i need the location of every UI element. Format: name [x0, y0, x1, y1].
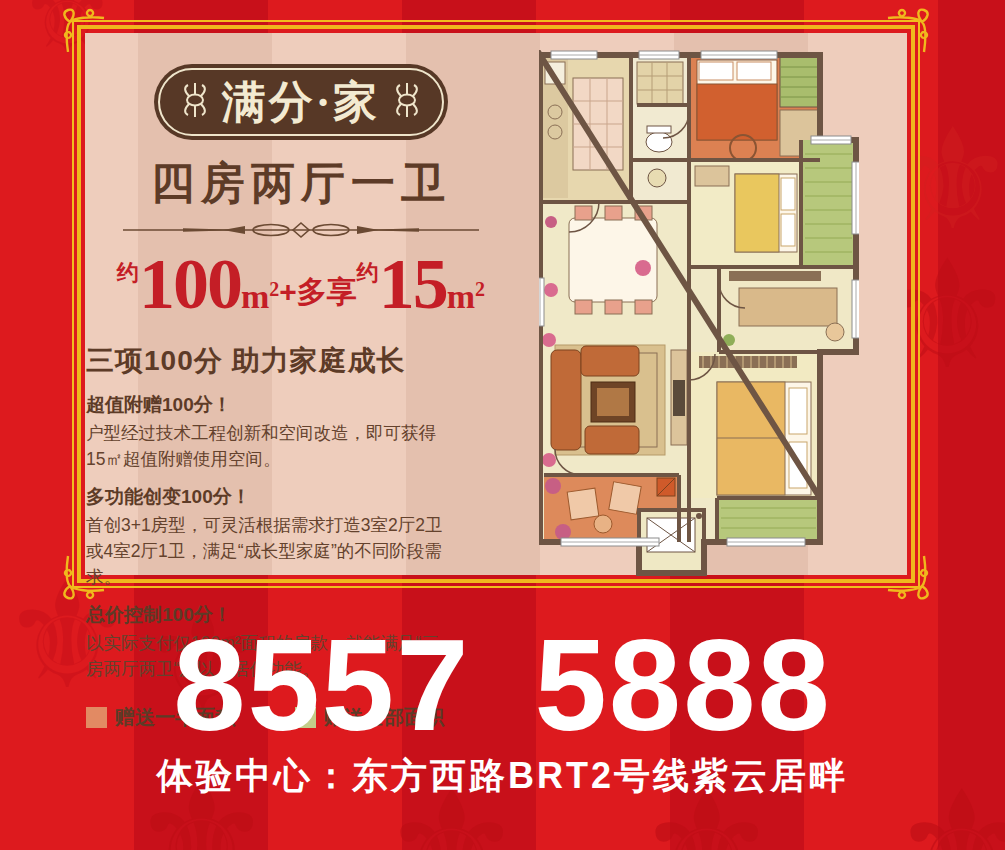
arrow-diamond-divider-icon — [123, 219, 479, 241]
section-heading: 三项100分 助力家庭成长 — [86, 342, 516, 380]
main-area-unit: m2 — [241, 278, 279, 315]
badge-title: 满分·家 — [222, 73, 381, 132]
experience-center-address: 体验中心：东方西路BRT2号线紫云居畔 — [0, 752, 1005, 801]
feature-title: 多功能创变100分！ — [86, 484, 446, 510]
room-study — [719, 267, 856, 352]
plus-sign: + — [279, 275, 297, 308]
poster-background: ⚜ ⚜ ⚜ ⚜ ⚜ ⚜ ⚜ ⚜ ⚜ 满分·家 — [0, 0, 1005, 850]
feature-title: 超值附赠100分！ — [86, 392, 446, 418]
bonus-label: 多享 — [297, 275, 357, 308]
room-bedroom-middle — [689, 160, 801, 267]
feature-body: 首创3+1房型，可灵活根据需求打造3室2厅2卫或4室2厅1卫，满足“成长型家庭”… — [86, 512, 446, 590]
approx-label: 约 — [357, 260, 379, 285]
balcony-green-gift — [717, 498, 820, 542]
approx-label: 约 — [117, 260, 139, 285]
floor-plan — [539, 50, 859, 578]
bonus-area-unit: m2 — [447, 278, 485, 315]
room-bathroom — [631, 55, 689, 202]
phone-number: 8557 5888 — [0, 620, 1005, 750]
room-living — [542, 333, 687, 467]
floral-ornament-icon — [394, 80, 420, 124]
area-figures: 约100m2+多享约15m2 — [86, 243, 516, 326]
bonus-area-value: 15 — [379, 244, 447, 324]
floral-ornament-icon — [182, 80, 208, 124]
feature-body: 户型经过技术工程创新和空间改造，即可获得15㎡超值附赠使用空间。 — [86, 420, 446, 472]
room-master-bedroom — [689, 352, 820, 498]
feature-section: 超值附赠100分！ 户型经过技术工程创新和空间改造，即可获得15㎡超值附赠使用空… — [86, 392, 446, 472]
feature-section: 多功能创变100分！ 首创3+1房型，可灵活根据需求打造3室2厅2卫或4室2厅1… — [86, 484, 446, 590]
brand-badge: 满分·家 — [154, 64, 448, 140]
layout-subtitle: 四房两厅一卫 — [86, 154, 516, 213]
main-area-value: 100 — [139, 244, 241, 324]
